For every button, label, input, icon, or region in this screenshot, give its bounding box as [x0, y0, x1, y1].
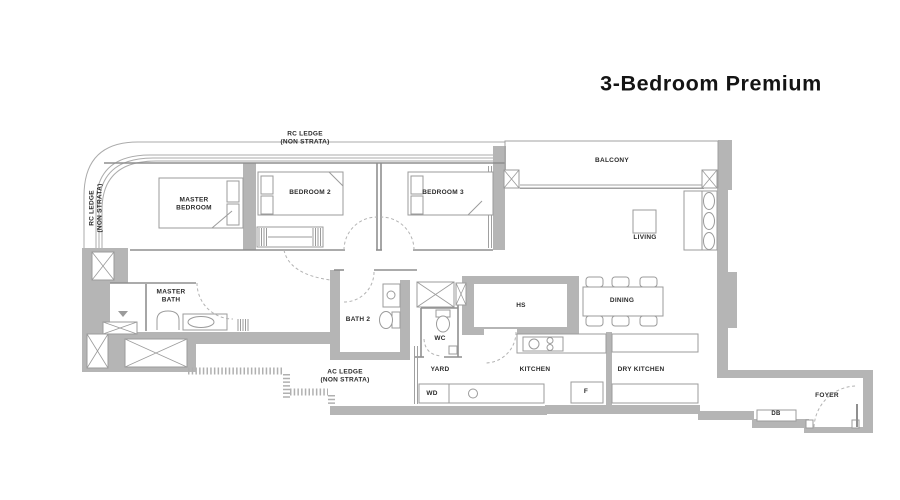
- shelf-hatch: [238, 319, 248, 331]
- bedroom3-bed: [408, 172, 493, 215]
- coffee-table: [633, 210, 656, 233]
- wc-fixtures: [436, 310, 457, 354]
- floor-plan: 3-Bedroom Premium RC LEDGE (NON STRATA) …: [0, 0, 900, 500]
- master-bed: [159, 178, 243, 228]
- bedroom2-wardrobe: [257, 227, 323, 247]
- ac-ledge-hatch: [188, 371, 332, 406]
- bedroom2-bed: [258, 172, 343, 215]
- db-box: [757, 410, 796, 421]
- plan-title: 3-Bedroom Premium: [600, 72, 822, 97]
- bath2-fixtures: [380, 284, 401, 329]
- kitchen-counters: [419, 334, 698, 403]
- dining-set: [583, 277, 663, 326]
- sofa: [684, 191, 717, 250]
